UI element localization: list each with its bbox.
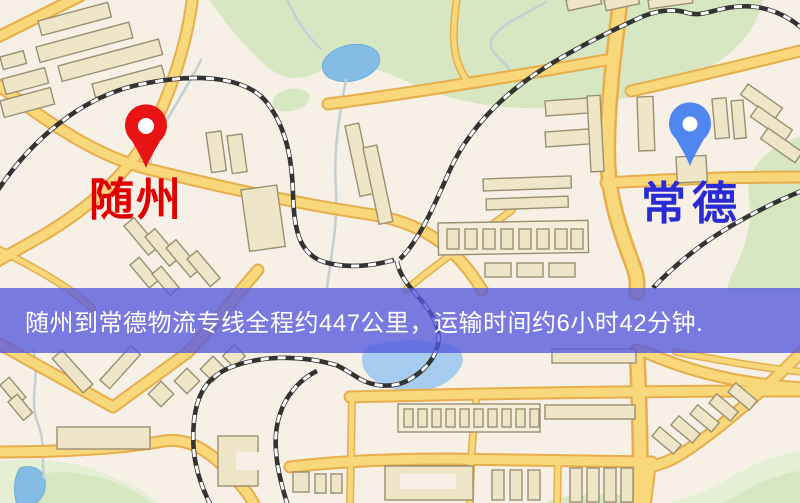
pin-icon bbox=[660, 98, 720, 168]
pin-icon bbox=[116, 100, 176, 170]
marker-label-suizhou: 随州 bbox=[89, 177, 183, 222]
route-info-banner: 随州到常德物流专线全程约447公里，运输时间约6小时42分钟. bbox=[0, 288, 800, 353]
route-info-text: 随州到常德物流专线全程约447公里，运输时间约6小时42分钟. bbox=[25, 303, 703, 338]
map-screenshot: 随州 常德 随州到常德物流专线全程约447公里，运输时间约6小时42分钟. bbox=[0, 0, 800, 503]
marker-label-changde: 常德 bbox=[641, 181, 743, 226]
marker-pin-changde[interactable] bbox=[660, 98, 720, 168]
marker-pin-suizhou[interactable] bbox=[116, 100, 176, 170]
map-canvas bbox=[0, 0, 800, 503]
